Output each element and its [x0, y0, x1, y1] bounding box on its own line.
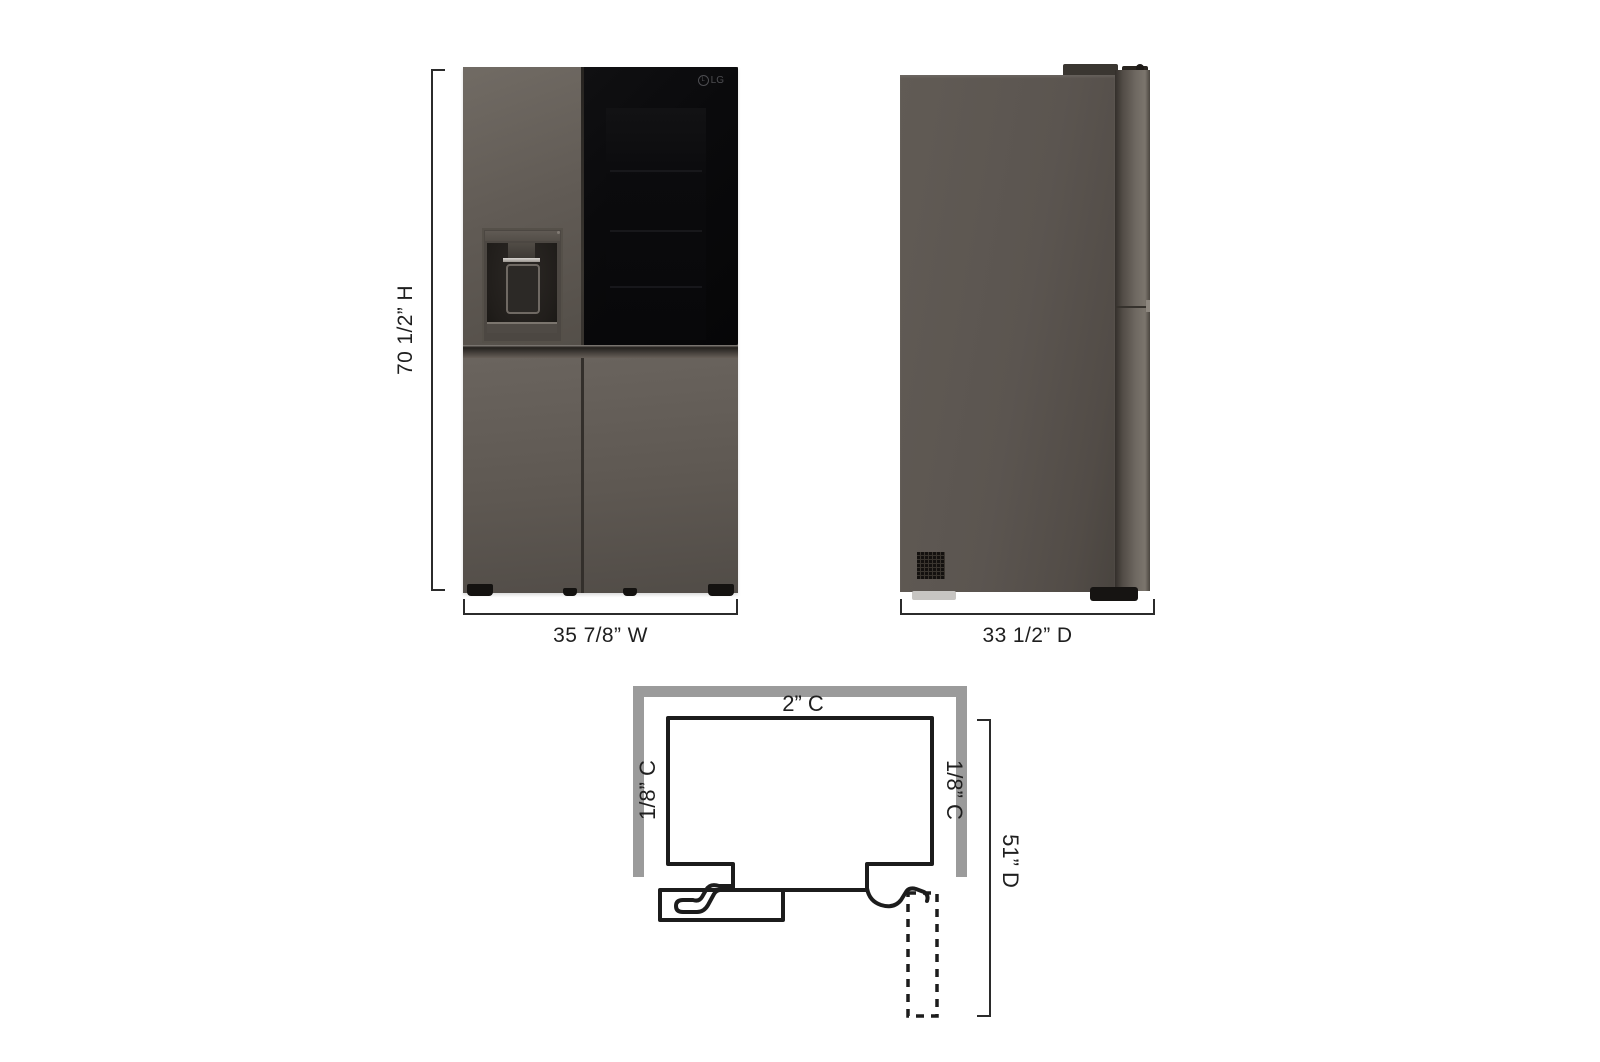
door-edge-profile — [1115, 70, 1150, 591]
width-dimension-tick-left — [463, 599, 465, 615]
depth-dimension-line — [900, 613, 1155, 615]
shelf-line — [610, 230, 702, 232]
dispenser-chrome-trim — [503, 258, 540, 262]
dispenser-recess — [487, 243, 557, 333]
door-edge-handle-notch — [1146, 300, 1150, 312]
height-dimension-tick-bottom — [431, 589, 445, 591]
front-right-foot — [708, 584, 734, 596]
right-clearance-label: 1/8” C — [942, 760, 967, 820]
depth-dimension-tick-left — [900, 599, 902, 615]
width-dimension-tick-right — [736, 599, 738, 615]
side-rear-caster — [1090, 587, 1138, 601]
dispenser-ice-chute — [508, 243, 535, 258]
height-dimension-line — [431, 69, 433, 591]
top-clearance-label: 2” C — [782, 691, 824, 716]
refrigerator-front-view: L LG — [463, 67, 738, 593]
ice-water-dispenser — [482, 228, 563, 343]
dispenser-indicator-dot — [557, 231, 560, 234]
dispenser-control-panel — [485, 231, 560, 241]
dispenser-drip-tray — [487, 322, 557, 333]
shelf-line — [610, 170, 702, 172]
front-left-foot — [467, 584, 493, 596]
front-mid-left-foot — [563, 588, 577, 596]
height-dimension-tick-top — [431, 69, 445, 71]
refrigerator-side-view — [900, 64, 1155, 601]
height-dimension-label: 70 1/2” H — [393, 250, 419, 410]
right-door-hinge-profile — [867, 888, 928, 906]
pocket-handle-band — [463, 345, 738, 358]
lg-logo-icon: L — [698, 75, 709, 86]
door-edge-seam — [1115, 306, 1150, 308]
dispenser-paddle — [506, 264, 540, 314]
side-front-foot — [912, 591, 956, 600]
left-door-open-outline — [660, 890, 783, 920]
width-dimension-line — [463, 613, 738, 615]
front-lower-doors — [463, 358, 738, 593]
dimension-diagram-page: L LG 70 1/2” H 35 7/8” W 33 1/2” D — [0, 0, 1600, 1062]
left-clearance-label: 1/8” C — [635, 760, 660, 820]
depth-dimension-tick-right — [1153, 599, 1155, 615]
side-vent-grille — [917, 552, 945, 579]
lg-logo: L LG — [698, 75, 724, 86]
instaview-window — [606, 108, 706, 340]
front-lower-door-gap — [581, 358, 584, 593]
right-door-swing-dashed — [908, 893, 937, 1016]
side-panel — [900, 75, 1115, 592]
lg-logo-text: LG — [711, 75, 724, 86]
fridge-footprint-outline — [668, 718, 932, 890]
instaview-glass-door: L LG — [584, 67, 738, 345]
depth-dimension-label: 33 1/2” D — [900, 623, 1155, 649]
clearance-top-view-diagram: 2” C 1/8” C 1/8” C 51” D — [600, 670, 1030, 1040]
open-depth-dimension-bracket — [977, 720, 990, 1016]
front-mid-right-foot — [623, 588, 637, 596]
open-depth-label: 51” D — [998, 834, 1023, 888]
shelf-line — [610, 286, 702, 288]
width-dimension-label: 35 7/8” W — [463, 623, 738, 649]
